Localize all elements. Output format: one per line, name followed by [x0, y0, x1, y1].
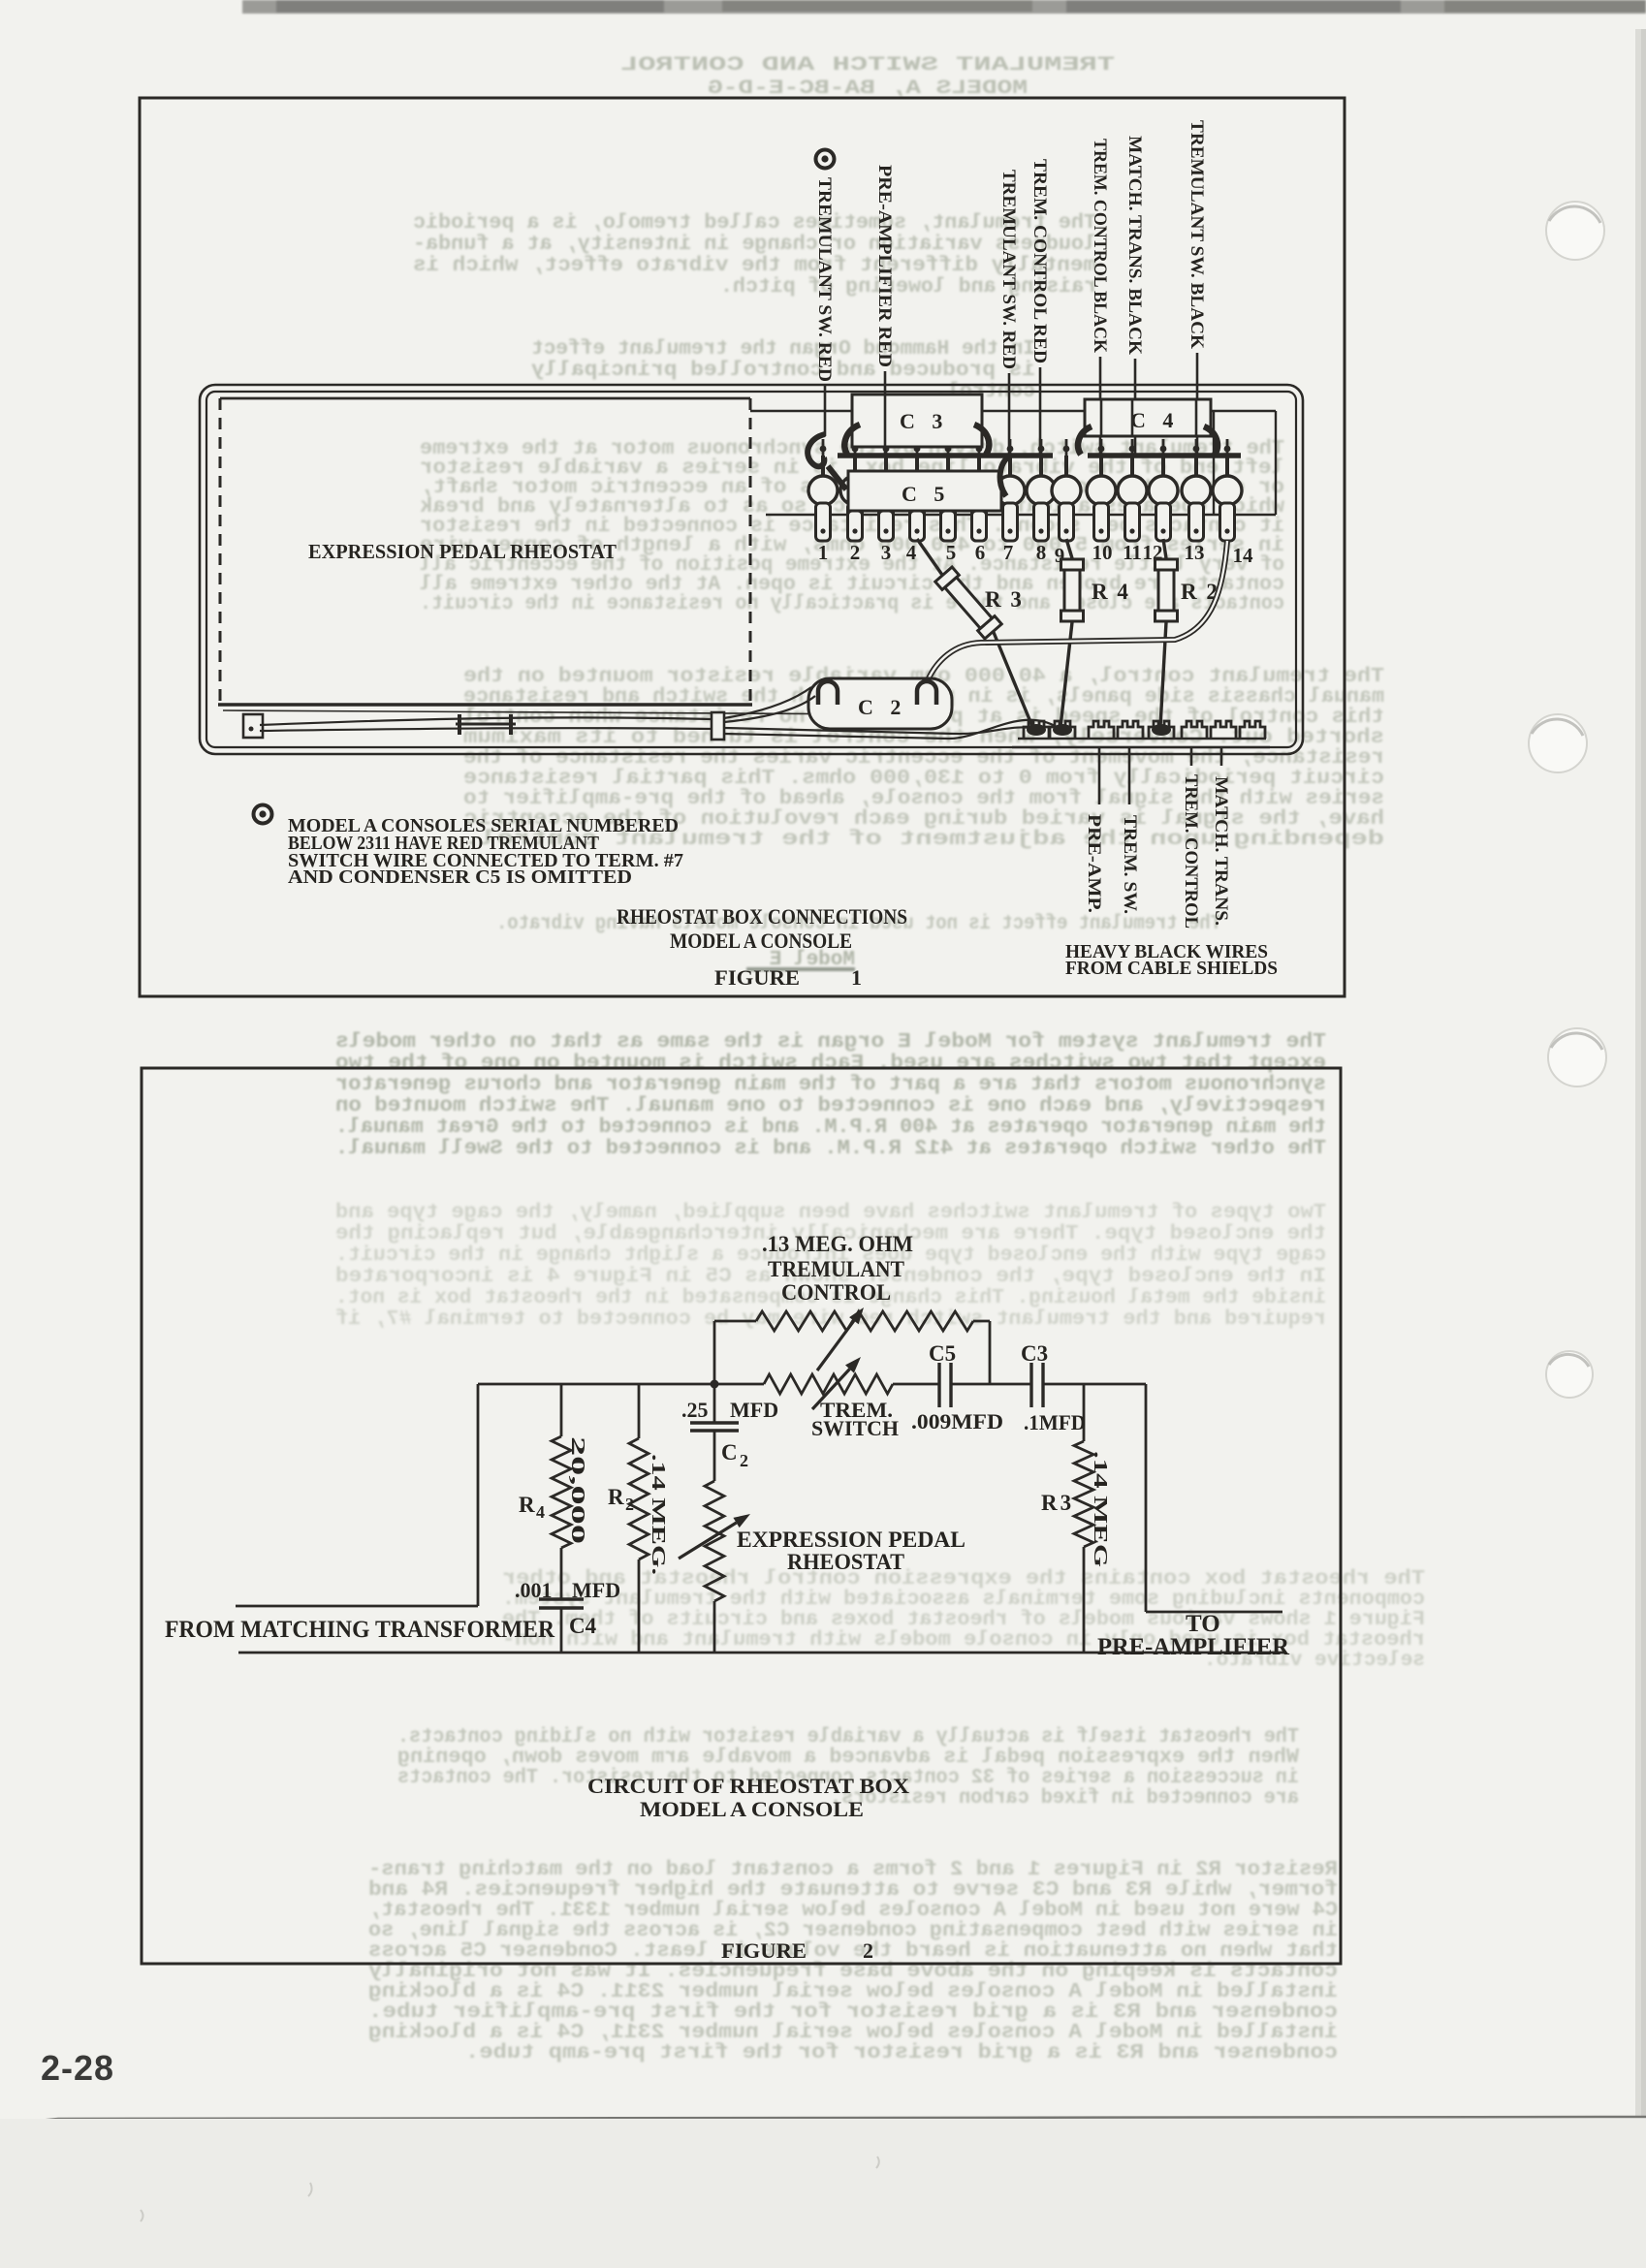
svg-text:Two types of tremulant switche: Two types of tremulant switches have bee…: [335, 1201, 1326, 1224]
svg-text:4: 4: [536, 1502, 545, 1522]
svg-text:2: 2: [850, 541, 861, 564]
svg-text:FIGURE: FIGURE: [721, 1938, 807, 1963]
svg-text:EXPRESSION PEDAL: EXPRESSION PEDAL: [737, 1528, 965, 1552]
svg-text:4: 4: [906, 541, 917, 564]
svg-text:7: 7: [1003, 541, 1014, 564]
svg-text:R: R: [519, 1493, 535, 1517]
svg-text:except that two switches are u: except that two switches are used. Each …: [335, 1052, 1326, 1075]
svg-text:R 4: R 4: [1092, 580, 1130, 604]
svg-text:6: 6: [975, 541, 986, 564]
svg-text:.1MFD: .1MFD: [1024, 1410, 1086, 1434]
svg-text:condenser and R3 is a grid res: condenser and R3 is a grid resistor for …: [465, 2041, 1338, 2064]
svg-text:The tremulant system for Model: The tremulant system for Model E organ i…: [335, 1030, 1326, 1054]
svg-text:13: 13: [1185, 541, 1205, 564]
svg-text:2: 2: [625, 1495, 634, 1514]
svg-text:synchronous motors that are a: synchronous motors that are a part of th…: [335, 1073, 1326, 1096]
svg-text:MFD: MFD: [730, 1398, 778, 1422]
svg-text:1: 1: [851, 965, 862, 990]
svg-text:C 2: C 2: [858, 695, 906, 719]
svg-text:TREM. CONTROL BLACK: TREM. CONTROL BLACK: [1090, 139, 1110, 353]
svg-text:In the Hammond Organ the tremu: In the Hammond Organ the tremulant effec…: [531, 337, 1035, 361]
svg-text:MFD: MFD: [572, 1578, 620, 1602]
svg-text:MODEL A CONSOLE: MODEL A CONSOLE: [640, 1797, 864, 1821]
svg-text:MATCH. TRANS. BLACK: MATCH. TRANS. BLACK: [1124, 136, 1145, 355]
svg-text:respectively, and each one is: respectively, and each one is connected …: [335, 1094, 1326, 1118]
svg-text:TREMULANT SW. RED: TREMULANT SW. RED: [998, 170, 1019, 369]
svg-text:.009MFD: .009MFD: [911, 1409, 1003, 1433]
svg-text:TREMULANT: TREMULANT: [768, 1257, 904, 1281]
svg-text:14: 14: [1233, 544, 1254, 567]
svg-text:11: 11: [1123, 541, 1142, 564]
svg-text:PRE-AMPLIFIER: PRE-AMPLIFIER: [1097, 1634, 1290, 1660]
svg-text:TREMULANT SW. RED: TREMULANT SW. RED: [814, 177, 835, 382]
svg-text:TREM. CONTROL RED: TREM. CONTROL RED: [1029, 159, 1050, 363]
svg-text:C5: C5: [929, 1341, 956, 1366]
svg-text:R 3: R 3: [985, 587, 1024, 612]
svg-text:.14 MEG.: .14 MEG.: [648, 1454, 669, 1575]
svg-text:2: 2: [740, 1451, 748, 1470]
svg-text:C3: C3: [1021, 1341, 1048, 1366]
svg-text:mentally different from the vi: mentally different from the vibrato effe…: [413, 254, 1096, 277]
svg-text:CIRCUIT OF RHEOSTAT BOX: CIRCUIT OF RHEOSTAT BOX: [587, 1774, 909, 1798]
svg-text:FROM MATCHING TRANSFORMER: FROM MATCHING TRANSFORMER: [165, 1617, 555, 1643]
svg-text:C 4: C 4: [1130, 408, 1179, 432]
svg-text:MATCH. TRANS.: MATCH. TRANS.: [1211, 776, 1231, 926]
svg-text:.25: .25: [681, 1398, 709, 1422]
svg-text:RHEOSTAT BOX CONNECTIONS: RHEOSTAT BOX CONNECTIONS: [617, 904, 907, 929]
svg-text:10: 10: [1092, 541, 1113, 564]
svg-text:FROM CABLE SHIELDS: FROM CABLE SHIELDS: [1065, 958, 1278, 979]
svg-text:R: R: [608, 1485, 624, 1509]
svg-text:is produced and controlled pri: is produced and controlled principally: [531, 359, 1035, 382]
svg-text:2: 2: [863, 1938, 873, 1963]
svg-text:TREM. CONTROL: TREM. CONTROL: [1181, 774, 1201, 929]
svg-text:.001: .001: [515, 1578, 553, 1602]
svg-text:The other switch operates at 4: The other switch operates at 412 R.P.M. …: [335, 1137, 1326, 1160]
svg-text:the main generator operates at: the main generator operates at 400 R.P.M…: [335, 1116, 1326, 1139]
svg-text:2-28: 2-28: [41, 2048, 114, 2088]
svg-text:5: 5: [946, 541, 957, 564]
svg-text:20,000: 20,000: [567, 1436, 588, 1544]
svg-text:8: 8: [1036, 541, 1047, 564]
svg-text:C: C: [721, 1440, 738, 1465]
svg-text:MODEL A CONSOLE: MODEL A CONSOLE: [670, 929, 852, 953]
svg-text:R3: R3: [1041, 1491, 1074, 1515]
svg-text:.13 MEG. OHM: .13 MEG. OHM: [762, 1232, 913, 1256]
svg-text:.14 MEG: .14 MEG: [1090, 1451, 1111, 1568]
svg-text:FIGURE: FIGURE: [714, 965, 800, 990]
svg-text:3: 3: [881, 541, 892, 564]
svg-text:C4: C4: [569, 1614, 597, 1638]
svg-text:TREM. SW.: TREM. SW.: [1120, 815, 1140, 914]
svg-text:1: 1: [818, 541, 829, 564]
svg-text:loudness variation or change i: loudness variation or change in intensit…: [413, 233, 1096, 256]
svg-text:PRE-AMP.: PRE-AMP.: [1084, 814, 1104, 913]
svg-text:C 3: C 3: [900, 409, 948, 433]
svg-text:CONTROL: CONTROL: [781, 1280, 891, 1305]
svg-text:TO: TO: [1186, 1611, 1220, 1637]
svg-text:EXPRESSION PEDAL RHEOSTAT: EXPRESSION PEDAL RHEOSTAT: [308, 540, 617, 563]
svg-text:RHEOSTAT: RHEOSTAT: [787, 1550, 904, 1574]
svg-text:C 5: C 5: [902, 482, 950, 506]
svg-text:TREMULANT SW. BLACK: TREMULANT SW. BLACK: [1187, 120, 1207, 349]
svg-text:TREMULANT SWITCH AND CONTROL: TREMULANT SWITCH AND CONTROL: [620, 54, 1115, 77]
svg-text:The tremulant, sometimes calle: The tremulant, sometimes called tremolo,…: [413, 211, 1096, 235]
svg-text:PRE-AMPLIFIER RED: PRE-AMPLIFIER RED: [874, 165, 895, 367]
svg-text:SWITCH: SWITCH: [811, 1416, 899, 1440]
svg-text:AND CONDENSER C5 IS OMITTED: AND CONDENSER C5 IS OMITTED: [288, 866, 632, 888]
